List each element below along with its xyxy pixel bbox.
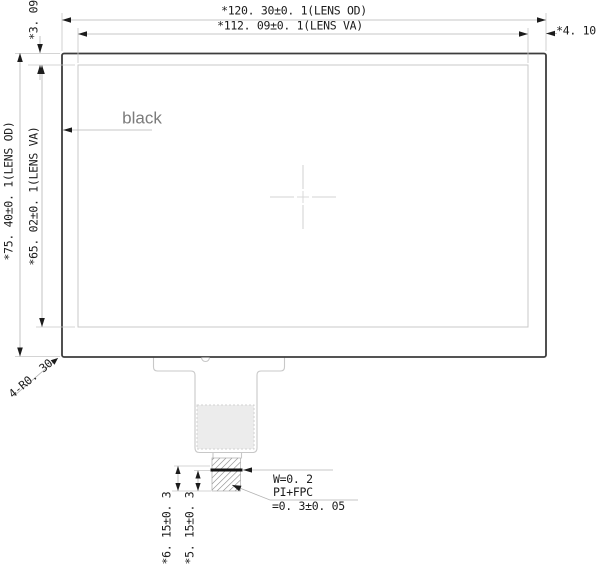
- lens-outline-drawing: *120. 30±0. 1(LENS OD) *112. 09±0. 1(LEN…: [0, 0, 600, 567]
- dim-fpc-length-inner-label: *5. 15±0. 3: [184, 492, 196, 565]
- fpc-stiffener: [197, 405, 254, 449]
- dim-lens-od-width-label: *120. 30±0. 1(LENS OD): [221, 5, 367, 17]
- dim-top-margin-label: *3. 09: [28, 0, 40, 40]
- dim-lens-od-height-label: *75. 40±0. 1(LENS OD): [3, 121, 15, 260]
- adhesive-bar: [211, 469, 243, 472]
- fpc-material-note: PI+FPC: [273, 487, 313, 499]
- dim-fpc-length-outer-label: *6. 15±0. 3: [161, 492, 173, 565]
- dim-lens-va-height-label: *65. 02±0. 1(LENS VA): [28, 126, 40, 265]
- corner-notch: [202, 358, 210, 362]
- dim-lens-va-width-label: *112. 09±0. 1(LENS VA): [217, 20, 363, 32]
- dim-right-margin-label: *4. 10: [556, 25, 596, 37]
- lens-outline: [62, 54, 546, 358]
- fpc-thickness-note: =0. 3±0. 05: [272, 501, 345, 513]
- surface-color-label: black: [122, 110, 162, 127]
- adhesive-width-note: W=0. 2: [273, 474, 313, 486]
